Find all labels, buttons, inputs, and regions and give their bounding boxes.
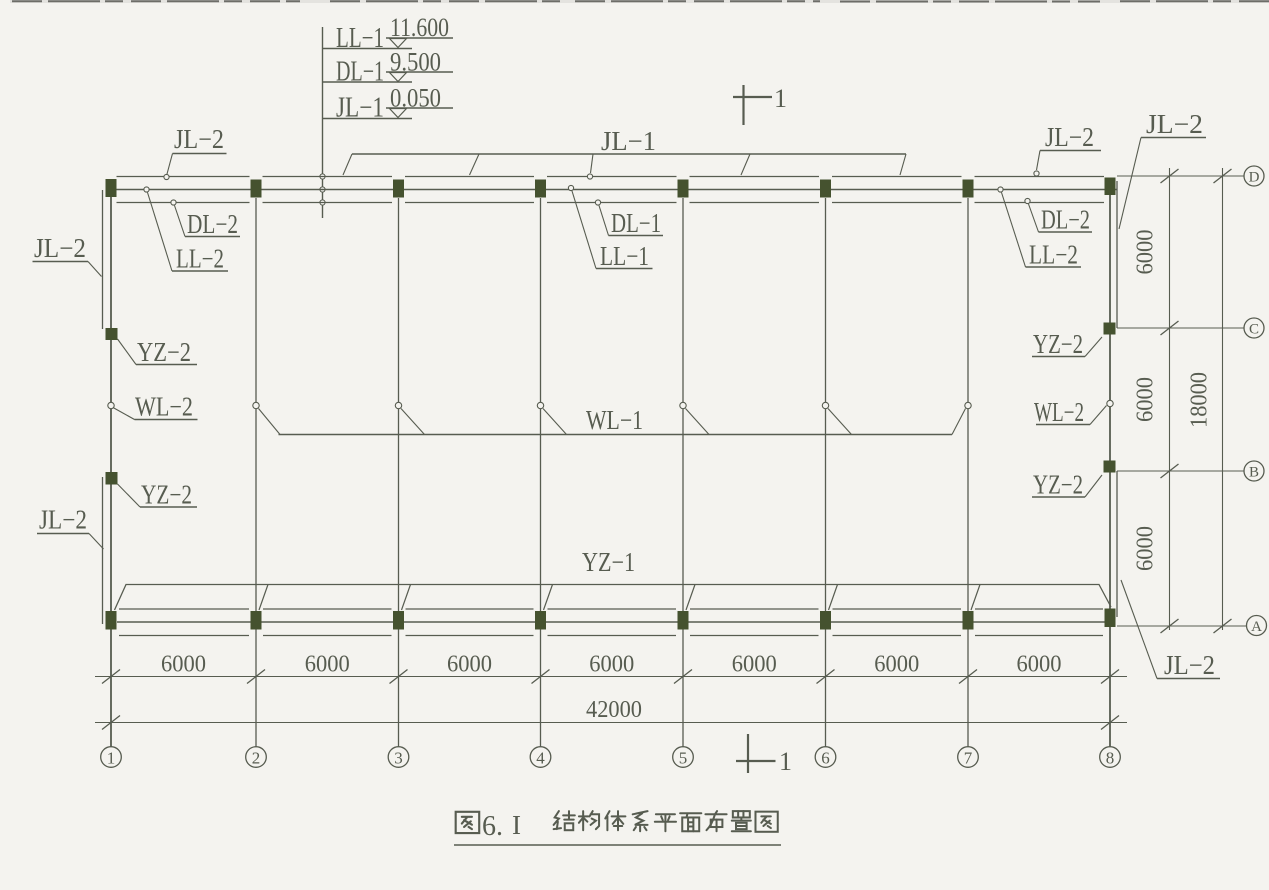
svg-text:C: C [1249,322,1259,338]
svg-text:D: D [1249,170,1260,186]
svg-text:YZ−1: YZ−1 [582,547,635,577]
svg-text:5: 5 [679,749,688,768]
svg-text:1: 1 [107,749,116,768]
svg-text:B: B [1249,465,1259,481]
svg-text:JL−2: JL−2 [1045,122,1094,152]
svg-text:6000: 6000 [447,652,492,678]
svg-text:WL−2: WL−2 [135,392,193,422]
svg-text:WL−2: WL−2 [1034,397,1084,427]
svg-text:JL−2: JL−2 [34,233,86,263]
svg-text:6000: 6000 [305,652,350,678]
svg-text:6000: 6000 [161,652,206,678]
svg-text:6000: 6000 [874,652,919,678]
svg-text:DL−1: DL−1 [336,57,384,88]
svg-text:JL−2: JL−2 [1146,109,1203,139]
svg-text:DL−2: DL−2 [187,209,238,239]
svg-text:6000: 6000 [1133,377,1159,422]
svg-text:7: 7 [964,749,973,768]
svg-text:1: 1 [774,84,787,113]
svg-text:I: I [512,810,521,840]
svg-text:2: 2 [252,749,261,768]
svg-text:6000: 6000 [732,652,777,678]
svg-text:DL−2: DL−2 [1041,205,1090,235]
svg-text:WL−1: WL−1 [586,405,643,435]
svg-text:YZ−2: YZ−2 [137,337,191,367]
svg-text:A: A [1251,619,1262,635]
svg-text:8: 8 [1106,749,1115,768]
svg-text:YZ−2: YZ−2 [1033,470,1083,500]
svg-text:YZ−2: YZ−2 [1033,329,1083,359]
svg-text:JL−2: JL−2 [1164,650,1215,680]
svg-text:3: 3 [394,749,403,768]
svg-text:6.: 6. [482,811,503,842]
svg-text:JL−2: JL−2 [174,124,224,154]
svg-text:YZ−2: YZ−2 [141,480,192,510]
svg-text:LL−1: LL−1 [600,241,649,271]
svg-text:4: 4 [536,749,545,768]
svg-text:6000: 6000 [1133,526,1159,571]
svg-text:DL−1: DL−1 [611,208,661,238]
svg-text:LL−2: LL−2 [1029,240,1078,270]
svg-text:1: 1 [779,747,792,776]
svg-text:6: 6 [821,749,830,768]
svg-text:6000: 6000 [589,652,634,678]
svg-text:42000: 42000 [586,697,642,723]
svg-text:6000: 6000 [1133,230,1159,275]
svg-text:6000: 6000 [1017,652,1062,678]
svg-text:LL−2: LL−2 [176,244,224,274]
svg-text:JL−1: JL−1 [601,126,656,156]
svg-text:JL−2: JL−2 [39,505,87,535]
svg-text:18000: 18000 [1187,372,1213,428]
svg-text:LL−1: LL−1 [336,23,384,54]
